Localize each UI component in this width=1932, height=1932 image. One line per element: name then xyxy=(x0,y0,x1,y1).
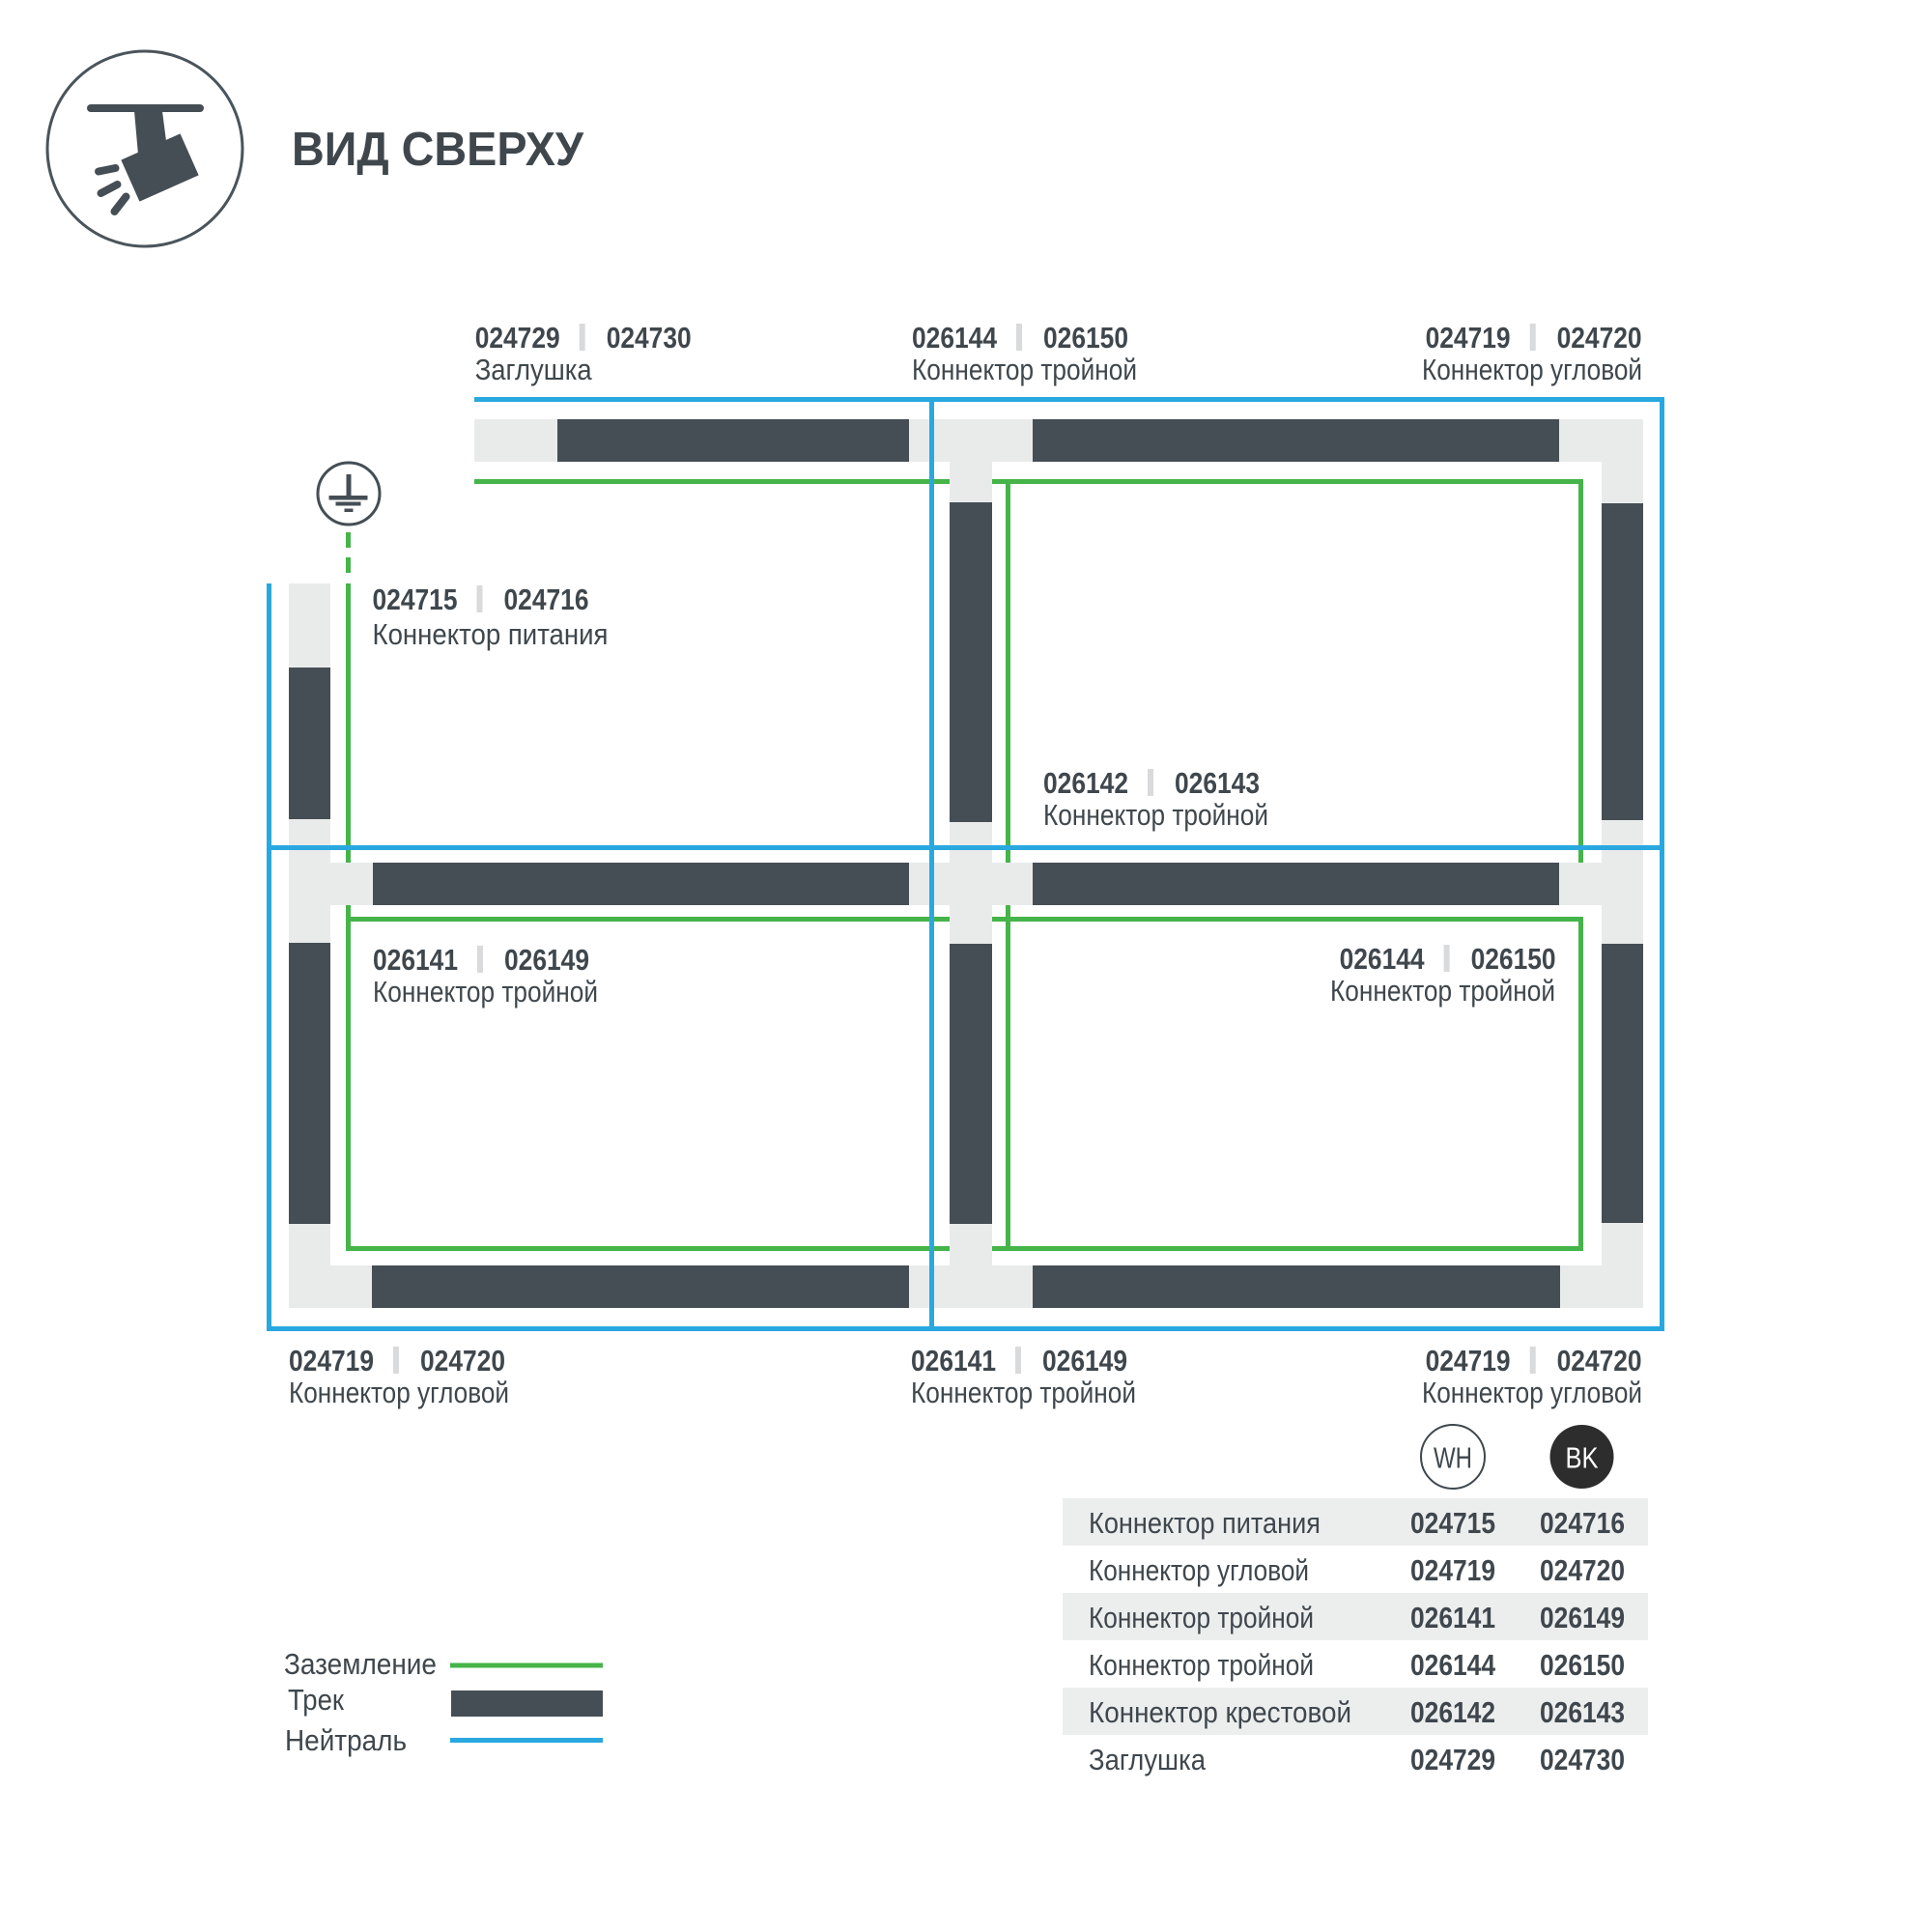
svg-text:024729: 024729 xyxy=(475,321,560,355)
svg-text:026143: 026143 xyxy=(1540,1695,1625,1729)
svg-text:024719: 024719 xyxy=(289,1344,374,1378)
svg-text:026144: 026144 xyxy=(1410,1648,1496,1682)
svg-text:Коннектор крестовой: Коннектор крестовой xyxy=(1089,1695,1351,1729)
svg-text:026149: 026149 xyxy=(504,943,589,977)
svg-text:026142: 026142 xyxy=(1043,766,1128,800)
svg-text:024729: 024729 xyxy=(1410,1743,1495,1776)
svg-text:024715: 024715 xyxy=(373,582,458,616)
svg-text:024715: 024715 xyxy=(1410,1506,1495,1540)
svg-text:BK: BK xyxy=(1566,1441,1599,1475)
svg-text:Заземление: Заземление xyxy=(284,1647,437,1681)
svg-text:024719: 024719 xyxy=(1426,321,1511,355)
svg-text:026141: 026141 xyxy=(1410,1601,1495,1634)
svg-text:024720: 024720 xyxy=(420,1344,505,1378)
svg-text:Коннектор тройной: Коннектор тройной xyxy=(911,1376,1136,1409)
svg-text:024719: 024719 xyxy=(1426,1344,1511,1378)
svg-text:026144: 026144 xyxy=(1340,942,1426,976)
svg-text:024730: 024730 xyxy=(1540,1743,1625,1776)
svg-text:024716: 024716 xyxy=(1540,1506,1625,1540)
svg-text:024730: 024730 xyxy=(607,321,692,355)
svg-text:Коннектор тройной: Коннектор тройной xyxy=(373,975,598,1009)
svg-text:Коннектор угловой: Коннектор угловой xyxy=(289,1376,509,1409)
svg-text:ВИД СВЕРХУ: ВИД СВЕРХУ xyxy=(292,124,583,176)
svg-text:Коннектор угловой: Коннектор угловой xyxy=(1089,1553,1309,1587)
svg-text:026150: 026150 xyxy=(1540,1648,1625,1682)
svg-text:026150: 026150 xyxy=(1471,942,1556,976)
svg-text:026144: 026144 xyxy=(912,321,998,355)
svg-text:024720: 024720 xyxy=(1557,321,1642,355)
svg-text:Заглушка: Заглушка xyxy=(475,353,593,386)
svg-text:026149: 026149 xyxy=(1042,1344,1127,1378)
svg-text:026149: 026149 xyxy=(1540,1601,1625,1634)
svg-text:Трек: Трек xyxy=(288,1683,344,1717)
svg-text:026141: 026141 xyxy=(373,943,458,977)
svg-text:Коннектор питания: Коннектор питания xyxy=(1089,1506,1321,1540)
svg-text:024720: 024720 xyxy=(1540,1553,1625,1587)
svg-text:Коннектор питания: Коннектор питания xyxy=(373,617,609,651)
svg-text:Заглушка: Заглушка xyxy=(1089,1743,1207,1776)
svg-text:Коннектор угловой: Коннектор угловой xyxy=(1422,1376,1642,1409)
svg-text:Коннектор тройной: Коннектор тройной xyxy=(1089,1648,1314,1682)
svg-text:Нейтраль: Нейтраль xyxy=(285,1723,407,1757)
svg-text:Коннектор тройной: Коннектор тройной xyxy=(912,353,1137,386)
svg-text:Коннектор тройной: Коннектор тройной xyxy=(1043,798,1268,832)
svg-text:024719: 024719 xyxy=(1410,1553,1495,1587)
svg-text:Коннектор угловой: Коннектор угловой xyxy=(1422,353,1642,386)
svg-text:WH: WH xyxy=(1434,1441,1472,1475)
svg-text:026142: 026142 xyxy=(1410,1695,1495,1729)
svg-text:026141: 026141 xyxy=(911,1344,996,1378)
svg-text:Коннектор тройной: Коннектор тройной xyxy=(1330,974,1555,1008)
svg-text:024716: 024716 xyxy=(504,582,589,616)
svg-text:026143: 026143 xyxy=(1175,766,1260,800)
svg-text:026150: 026150 xyxy=(1043,321,1128,355)
svg-text:Коннектор тройной: Коннектор тройной xyxy=(1089,1601,1314,1634)
svg-text:024720: 024720 xyxy=(1557,1344,1642,1378)
